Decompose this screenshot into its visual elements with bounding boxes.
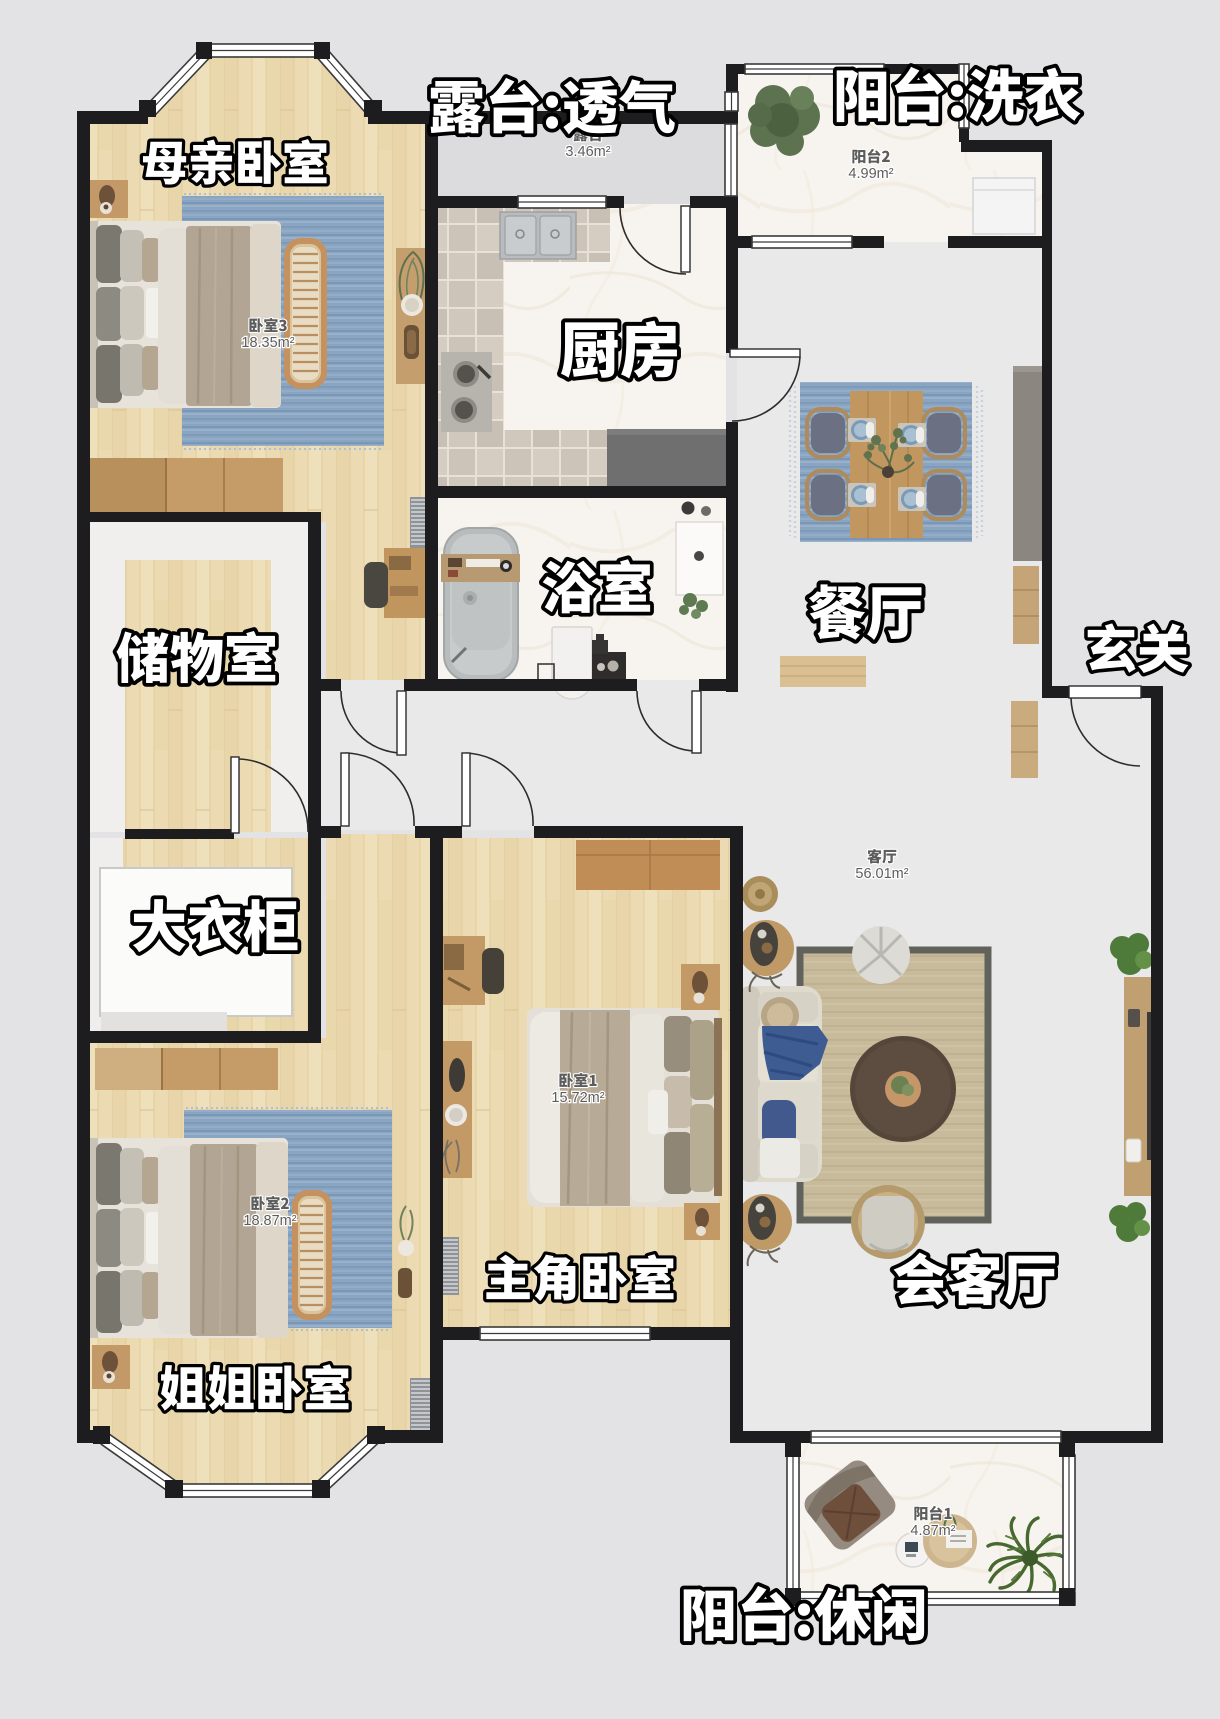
svg-text:56.01m²: 56.01m²	[855, 866, 908, 882]
svg-text:4.99m²: 4.99m²	[848, 166, 893, 182]
svg-text:18.35m²: 18.35m²	[241, 335, 294, 351]
svg-text:3.46m²: 3.46m²	[565, 144, 610, 160]
svg-text:4.87m²: 4.87m²	[910, 1523, 955, 1539]
svg-text:18.87m²: 18.87m²	[243, 1213, 296, 1229]
svg-text:15.72m²: 15.72m²	[551, 1090, 604, 1106]
